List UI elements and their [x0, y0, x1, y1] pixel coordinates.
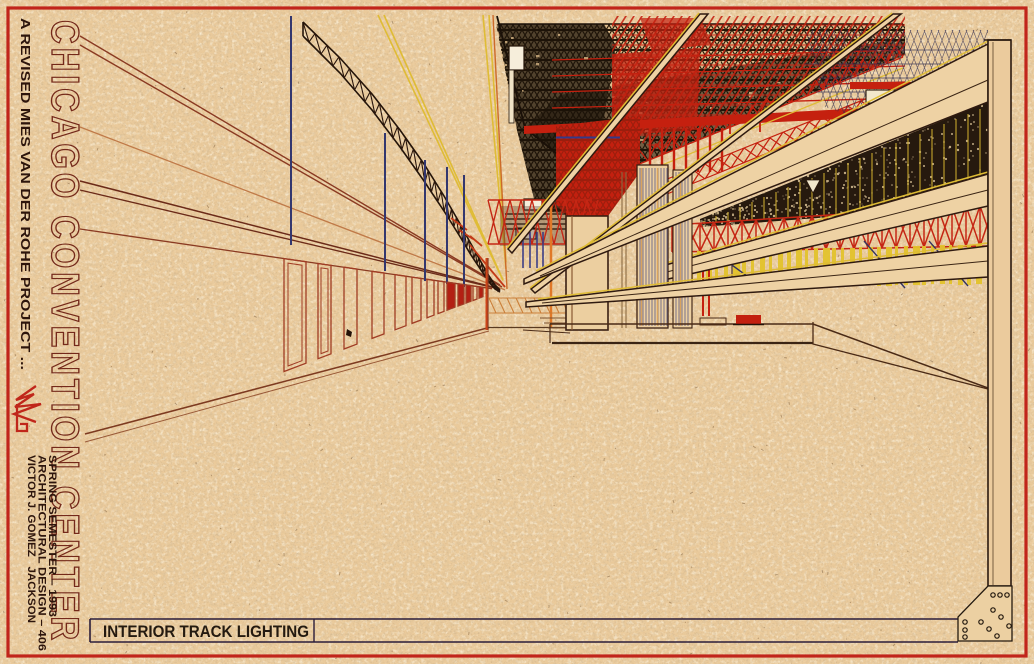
- svg-text:VICTOR J. GOMEZ JACKSON: VICTOR J. GOMEZ JACKSON: [25, 455, 37, 623]
- svg-text:INTERIOR TRACK LIGHTING: INTERIOR TRACK LIGHTING: [103, 623, 309, 641]
- svg-text:ARCHITECTURAL DESIGN – 406: ARCHITECTURAL DESIGN – 406: [36, 455, 48, 651]
- svg-text:SPRING SEMESTER – 1993: SPRING SEMESTER – 1993: [46, 455, 58, 617]
- svg-text:A REVISED MIES VAN DER ROHE PR: A REVISED MIES VAN DER ROHE PROJECT ...: [18, 18, 33, 370]
